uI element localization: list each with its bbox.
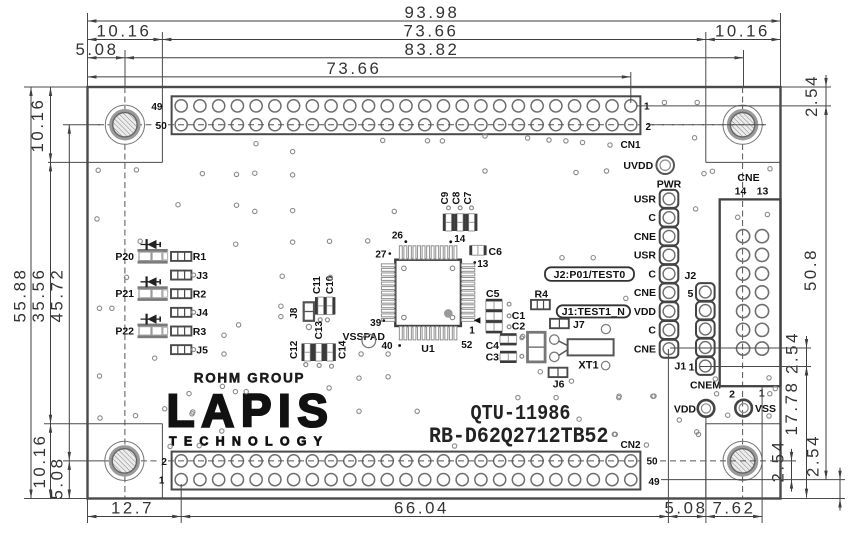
svg-text:2: 2 (646, 122, 652, 133)
svg-text:1: 1 (159, 476, 165, 487)
svg-text:P20: P20 (115, 251, 134, 263)
svg-text:50.8: 50.8 (801, 248, 820, 291)
svg-text:45.72: 45.72 (48, 268, 67, 323)
svg-text:TECHNOLOGY: TECHNOLOGY (169, 435, 329, 449)
svg-text:2: 2 (161, 457, 167, 468)
svg-text:2.54: 2.54 (783, 331, 802, 374)
svg-text:13: 13 (757, 186, 769, 198)
svg-text:C6: C6 (489, 246, 503, 258)
svg-text:73.66: 73.66 (404, 22, 459, 41)
svg-text:P21: P21 (115, 288, 134, 300)
svg-text:49: 49 (649, 477, 661, 488)
svg-text:C: C (648, 212, 656, 224)
svg-text:C: C (648, 268, 656, 280)
svg-text:5.08: 5.08 (664, 499, 707, 518)
svg-text:10.16: 10.16 (715, 22, 770, 41)
svg-text:12.7: 12.7 (111, 499, 154, 518)
svg-text:10.16: 10.16 (30, 434, 49, 489)
svg-text:10.16: 10.16 (28, 98, 47, 153)
svg-text:14: 14 (454, 234, 466, 245)
svg-text:C2: C2 (512, 321, 526, 333)
svg-text:1: 1 (689, 362, 695, 374)
svg-text:50: 50 (156, 121, 168, 132)
svg-text:C12: C12 (289, 340, 300, 359)
svg-text:J7: J7 (573, 319, 585, 331)
svg-text:PWR: PWR (657, 178, 682, 190)
svg-text:VDD: VDD (634, 306, 657, 318)
svg-text:C: C (648, 325, 656, 337)
svg-text:VDD: VDD (674, 403, 697, 415)
svg-text:USR: USR (634, 194, 657, 206)
svg-text:14: 14 (735, 186, 747, 198)
svg-text:C9: C9 (440, 191, 451, 204)
svg-text:XT1: XT1 (578, 360, 598, 372)
svg-text:CN2: CN2 (621, 440, 641, 451)
svg-text:C11: C11 (312, 276, 323, 294)
svg-text:1: 1 (644, 102, 650, 113)
svg-text:13: 13 (477, 259, 489, 270)
svg-text:J2: J2 (685, 270, 697, 282)
svg-text:J3: J3 (196, 270, 208, 282)
svg-text:66.04: 66.04 (394, 499, 449, 518)
svg-text:C14: C14 (338, 340, 349, 359)
svg-text:CNE: CNE (737, 172, 759, 184)
svg-text:C8: C8 (452, 191, 463, 204)
svg-text:26: 26 (392, 231, 404, 242)
svg-text:U1: U1 (421, 343, 435, 355)
svg-text:J5: J5 (196, 344, 208, 356)
svg-text:5.08: 5.08 (48, 456, 67, 499)
svg-text:35.56: 35.56 (29, 268, 48, 323)
svg-text:RB-D62Q2712TB52: RB-D62Q2712TB52 (429, 424, 609, 449)
svg-text:CNE: CNE (634, 231, 656, 243)
svg-text:J2:P01/TEST0: J2:P01/TEST0 (554, 269, 626, 281)
svg-text:C10: C10 (325, 275, 336, 294)
svg-text:R3: R3 (193, 326, 207, 338)
svg-text:R2: R2 (193, 289, 207, 301)
svg-text:CN1: CN1 (621, 140, 641, 151)
svg-text:C7: C7 (463, 191, 474, 204)
svg-text:5: 5 (688, 288, 694, 300)
svg-text:USR: USR (634, 250, 657, 262)
svg-text:P22: P22 (115, 326, 134, 338)
svg-text:C13: C13 (314, 321, 325, 340)
svg-text:2.54: 2.54 (802, 74, 821, 117)
svg-text:39: 39 (370, 318, 382, 329)
svg-text:1: 1 (469, 326, 475, 337)
svg-text:C5: C5 (486, 288, 500, 300)
svg-text:ROHM GROUP: ROHM GROUP (194, 370, 306, 385)
svg-text:49: 49 (151, 102, 163, 113)
svg-text:R1: R1 (193, 251, 207, 263)
svg-text:J1: J1 (675, 361, 687, 373)
svg-text:73.66: 73.66 (327, 59, 382, 78)
svg-text:2: 2 (729, 389, 735, 401)
svg-text:17.78: 17.78 (782, 381, 801, 436)
svg-text:27: 27 (375, 250, 387, 261)
svg-text:83.82: 83.82 (405, 40, 460, 59)
svg-text:QTU-11986: QTU-11986 (471, 402, 571, 426)
svg-text:52: 52 (461, 340, 473, 351)
svg-text:R4: R4 (535, 289, 549, 301)
svg-text:7.62: 7.62 (712, 499, 755, 518)
svg-text:50: 50 (647, 457, 659, 468)
svg-text:93.98: 93.98 (405, 3, 460, 22)
svg-text:CNE: CNE (634, 287, 656, 299)
svg-text:J4: J4 (196, 307, 208, 319)
svg-text:UVDD: UVDD (623, 160, 653, 172)
svg-text:10.16: 10.16 (97, 22, 152, 41)
svg-text:CNE: CNE (634, 343, 656, 355)
svg-text:J8: J8 (289, 307, 300, 319)
svg-text:J1:TEST1_N: J1:TEST1_N (562, 306, 625, 318)
svg-text:J6: J6 (553, 378, 565, 390)
svg-text:5.08: 5.08 (75, 40, 118, 59)
svg-text:55.88: 55.88 (11, 268, 30, 323)
svg-text:C3: C3 (486, 351, 500, 363)
svg-text:VSS: VSS (755, 403, 776, 415)
